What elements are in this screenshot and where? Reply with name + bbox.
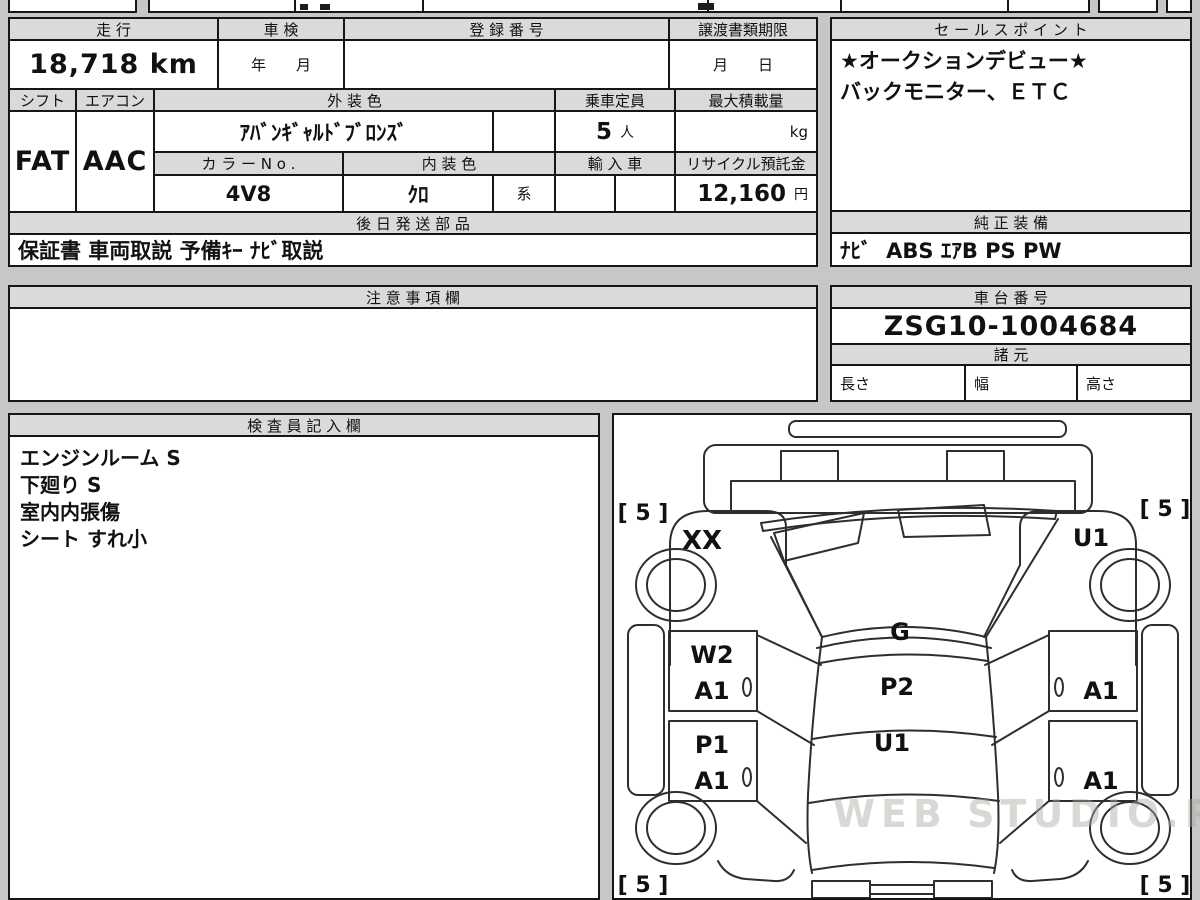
front-lip [789, 421, 1066, 437]
windshield-right [898, 505, 990, 537]
inspector-notes-header: 検 査 員 記 入 欄 [10, 415, 598, 437]
rear-left-quarter [718, 861, 794, 881]
shift-header: シフト [10, 90, 77, 112]
notes-header: 注 意 事 項 欄 [10, 287, 816, 309]
rear-left-wheel-inner [647, 802, 705, 854]
recycle-deposit-unit: 円 [794, 184, 808, 204]
height-label: 高さ [1078, 366, 1190, 400]
rear-light-left [812, 881, 870, 898]
chassis-box: 車 台 番 号 ZSG10-1004684 諸 元 長さ 幅 高さ [830, 285, 1192, 402]
color-no-header: カ ラ ー N o . [155, 153, 344, 176]
sales-point-header: セ ー ル ス ポ イ ン ト [832, 19, 1190, 41]
cell-divider [1007, 0, 1009, 11]
genuine-equipment-box: 純 正 装 備 ﾅﾋﾞ ABS ｴｱB PS PW [830, 210, 1192, 267]
genuine-equipment-header: 純 正 装 備 [832, 212, 1190, 234]
mileage-value: 18,718 km [10, 41, 219, 88]
cabin-left-edge [808, 637, 823, 873]
cropped-text-remnant [300, 4, 308, 10]
interior-color-header: 内 装 色 [344, 153, 556, 176]
genuine-equipment-value: ﾅﾋﾞ ABS ｴｱB PS PW [832, 234, 1190, 265]
registration-header: 登 録 番 号 [345, 19, 670, 41]
front-right-wheel-inner [1101, 559, 1159, 611]
code-left-front-door: A1 [694, 677, 729, 705]
import-car-cell [556, 176, 616, 211]
auction-sheet: 走 行 車 検 登 録 番 号 譲渡書類期限 18,718 km 年 月 月 日… [0, 0, 1200, 900]
sales-point-line2: バックモニター、ＥＴＣ [840, 77, 1071, 108]
shift-value: FAT [10, 112, 77, 211]
left-front-door-handle [743, 678, 751, 696]
recycle-deposit-value: 12,160 [697, 181, 786, 207]
exterior-color-value: ｱﾊﾞﾝｷﾞｬﾙﾄﾞﾌﾞﾛﾝｽﾞ [155, 112, 494, 153]
inspector-note-line: 室内内張傷 [20, 499, 120, 526]
code-front-left-fender: XX [682, 526, 722, 556]
right-sill [1142, 625, 1178, 795]
notes-box: 注 意 事 項 欄 [8, 285, 818, 402]
roof-front-edge [820, 654, 988, 663]
watermark: WEB STUDIO.RU [833, 792, 1200, 836]
cropped-row-fragment [8, 0, 137, 13]
left-front-door-fold [757, 635, 821, 665]
recycle-deposit-header: リサイクル預託金 [676, 153, 816, 176]
code-roof-rear: U1 [874, 729, 910, 757]
vehicle-info-table-mid: シフト エアコン 外 装 色 乗車定員 最大積載量 FAT AAC ｱﾊﾞﾝｷﾞ… [8, 88, 818, 213]
front-right-fender [984, 511, 1136, 665]
later-parts-value: 保証書 車両取説 予備ｷｰ ﾅﾋﾞ取説 [10, 235, 816, 265]
import-car-cell [616, 176, 676, 211]
tire-grade-front-left: [ 5 ] [618, 501, 669, 526]
code-left-rear-door: A1 [694, 767, 729, 795]
sales-point-line1: ★オークションデビュー★ [840, 46, 1088, 77]
chassis-value: ZSG10-1004684 [832, 309, 1190, 345]
cropped-row-fragment [148, 0, 1090, 13]
right-front-door-handle [1055, 678, 1063, 696]
headlight-right [947, 451, 1004, 481]
capacity-header: 乗車定員 [556, 90, 676, 112]
sales-point-box: セ ー ル ス ポ イ ン ト ★オークションデビュー★ バックモニター、ＥＴＣ [830, 17, 1192, 212]
color-no-value: 4V8 [155, 176, 344, 211]
cell-divider [294, 0, 296, 11]
right-rear-door-handle [1055, 768, 1063, 786]
length-label: 長さ [832, 366, 966, 400]
inspector-note-line: 下廻り S [20, 472, 101, 499]
tire-grade-front-right: [ 5 ] [1140, 497, 1190, 522]
right-mid-fold [992, 711, 1049, 745]
recycle-deposit-cell: 12,160 円 [676, 176, 816, 211]
specs-header: 諸 元 [832, 345, 1190, 366]
max-load-header: 最大積載量 [676, 90, 816, 112]
max-load-unit: kg [676, 112, 816, 153]
exterior-color-extra-cell [494, 112, 556, 153]
cell-divider [840, 0, 842, 11]
transfer-deadline-value: 月 日 [670, 41, 816, 88]
right-front-door-fold [985, 635, 1049, 665]
tire-grade-rear-left: [ 5 ] [618, 873, 669, 898]
code-right-rear-door: A1 [1083, 767, 1118, 795]
import-car-header: 輸 入 車 [556, 153, 676, 176]
aircon-value: AAC [77, 112, 155, 211]
code-roof-front: G [890, 618, 910, 646]
cabin-right-edge [986, 637, 999, 873]
hood-right-edge [986, 519, 1058, 637]
capacity-value: 5 [596, 119, 612, 145]
code-right-front-door: A1 [1083, 677, 1118, 705]
aircon-header: エアコン [77, 90, 155, 112]
tire-grade-rear-right: [ 5 ] [1140, 873, 1190, 898]
capacity-unit: 人 [620, 122, 634, 142]
cropped-row-fragment [1098, 0, 1158, 13]
left-sill [628, 625, 664, 795]
cropped-text-remnant [320, 4, 330, 10]
cowl-strip [761, 508, 1057, 531]
front-left-wheel-inner [647, 559, 705, 611]
notes-body [10, 309, 816, 400]
code-left-rear-door-upper: P1 [695, 731, 729, 759]
front-bumper [704, 445, 1092, 513]
inspector-note-line: シート すれ小 [20, 526, 147, 553]
code-left-front-door-upper: W2 [690, 641, 733, 669]
rear-window-bottom [812, 862, 994, 870]
shaken-value: 年 月 [219, 41, 345, 88]
registration-value [345, 41, 670, 88]
exterior-color-header: 外 装 色 [155, 90, 556, 112]
transfer-deadline-header: 譲渡書類期限 [670, 19, 816, 41]
rear-light-right [934, 881, 992, 898]
code-front-right-fender: U1 [1073, 524, 1109, 552]
inspector-notes-box: 検 査 員 記 入 欄 エンジンルーム S 下廻り S 室内内張傷 シート すれ… [8, 413, 600, 900]
left-mid-fold [757, 711, 814, 745]
capacity-value-cell: 5 人 [556, 112, 676, 153]
later-parts-header: 後 日 発 送 部 品 [10, 213, 816, 235]
rear-right-quarter [1012, 861, 1088, 881]
inspector-note-line: エンジンルーム S [20, 445, 181, 472]
interior-color-value: ｸﾛ [344, 176, 494, 211]
cropped-text-remnant [698, 3, 714, 10]
left-rear-door-handle [743, 768, 751, 786]
cropped-row-fragment [1166, 0, 1192, 13]
sales-point-body: ★オークションデビュー★ バックモニター、ＥＴＣ [832, 41, 1190, 210]
later-parts-table: 後 日 発 送 部 品 保証書 車両取説 予備ｷｰ ﾅﾋﾞ取説 [8, 211, 818, 267]
shaken-header: 車 検 [219, 19, 345, 41]
headlight-left [781, 451, 838, 481]
cell-divider [422, 0, 424, 11]
left-rear-fold [757, 801, 806, 843]
vehicle-info-table-top: 走 行 車 検 登 録 番 号 譲渡書類期限 18,718 km 年 月 月 日 [8, 17, 818, 90]
interior-color-suffix: 系 [494, 176, 556, 211]
code-roof-center: P2 [880, 673, 914, 701]
mileage-header: 走 行 [10, 19, 219, 41]
width-label: 幅 [966, 366, 1078, 400]
inspector-notes-body: エンジンルーム S 下廻り S 室内内張傷 シート すれ小 [10, 437, 598, 898]
chassis-header: 車 台 番 号 [832, 287, 1190, 309]
